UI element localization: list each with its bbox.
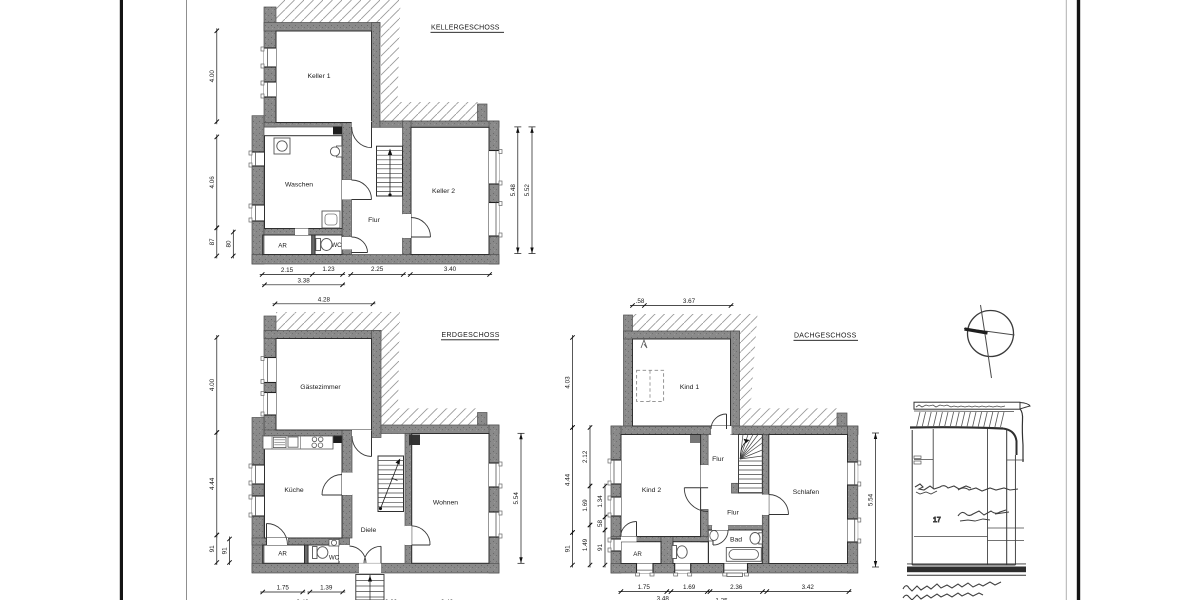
- svg-text:5.54: 5.54: [868, 493, 875, 506]
- svg-text:3.40: 3.40: [444, 266, 457, 273]
- svg-text:Flur: Flur: [712, 456, 724, 463]
- svg-text:4.28: 4.28: [318, 296, 331, 303]
- svg-text:3.48: 3.48: [657, 596, 670, 600]
- svg-text:AR: AR: [278, 551, 287, 558]
- svg-text:5.52: 5.52: [524, 184, 531, 197]
- svg-text:Gästezimmer: Gästezimmer: [300, 384, 341, 391]
- svg-text:Flur: Flur: [727, 510, 739, 517]
- svg-text:DACHGESCHOSS: DACHGESCHOSS: [794, 333, 857, 340]
- svg-text:Kind 1: Kind 1: [680, 384, 699, 391]
- svg-text:ERDGESCHOSS: ERDGESCHOSS: [442, 332, 500, 339]
- svg-text:5.54: 5.54: [513, 492, 520, 505]
- svg-text:91: 91: [209, 545, 216, 553]
- svg-text:AR: AR: [633, 551, 642, 558]
- svg-text:Bad: Bad: [730, 537, 742, 544]
- svg-text:3.38: 3.38: [297, 277, 310, 284]
- svg-text:Flur: Flur: [368, 217, 380, 224]
- svg-text:Schlafen: Schlafen: [793, 489, 820, 496]
- svg-text:80: 80: [225, 240, 232, 248]
- svg-text:Diele: Diele: [361, 527, 377, 534]
- svg-text:.58: .58: [636, 298, 645, 305]
- svg-text:WC: WC: [331, 242, 342, 249]
- svg-text:4.06: 4.06: [209, 176, 216, 189]
- svg-text:WC: WC: [329, 555, 340, 562]
- svg-text:Küche: Küche: [284, 487, 303, 494]
- svg-text:1.75: 1.75: [638, 584, 651, 591]
- svg-text:1.23: 1.23: [322, 266, 335, 273]
- svg-text:1.75: 1.75: [277, 585, 290, 592]
- svg-text:1.49: 1.49: [582, 538, 589, 551]
- svg-text:4.00: 4.00: [209, 70, 216, 83]
- svg-text:1.39: 1.39: [320, 585, 333, 592]
- svg-text:2.25: 2.25: [371, 266, 384, 273]
- svg-text:2.12: 2.12: [582, 450, 589, 463]
- svg-text:Waschen: Waschen: [285, 182, 313, 189]
- svg-text:2.36: 2.36: [730, 584, 743, 591]
- svg-text:3.67: 3.67: [683, 298, 696, 305]
- svg-text:4.44: 4.44: [209, 477, 216, 490]
- svg-text:91: 91: [222, 547, 229, 555]
- svg-text:Wohnen: Wohnen: [433, 500, 458, 507]
- svg-text:4.03: 4.03: [565, 376, 572, 389]
- svg-text:2.15: 2.15: [281, 267, 294, 274]
- svg-text:1.69: 1.69: [683, 584, 696, 591]
- svg-text:KELLERGESCHOSS: KELLERGESCHOSS: [431, 25, 500, 32]
- svg-text:17: 17: [933, 517, 941, 524]
- svg-text:91: 91: [597, 544, 604, 552]
- svg-text:58: 58: [597, 520, 604, 528]
- svg-text:1.34: 1.34: [597, 495, 604, 508]
- svg-text:AR: AR: [278, 243, 287, 250]
- svg-text:4.44: 4.44: [565, 473, 572, 486]
- svg-text:Keller 1: Keller 1: [307, 73, 330, 80]
- svg-text:91: 91: [565, 545, 572, 553]
- svg-text:4.00: 4.00: [209, 378, 216, 391]
- svg-text:Keller 2: Keller 2: [432, 188, 455, 195]
- svg-text:87: 87: [209, 238, 216, 246]
- svg-text:5.48: 5.48: [510, 184, 517, 197]
- svg-text:3.42: 3.42: [802, 584, 815, 591]
- svg-text:1.69: 1.69: [582, 499, 589, 512]
- svg-text:Kind 2: Kind 2: [642, 487, 661, 494]
